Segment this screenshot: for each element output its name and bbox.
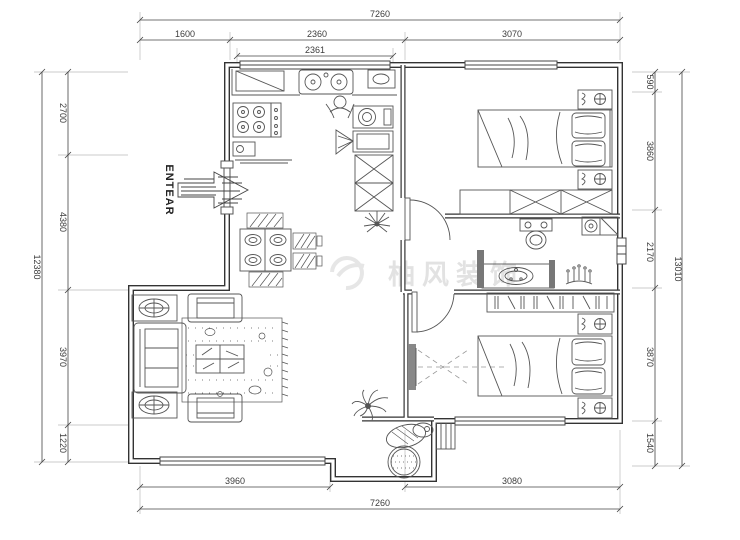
bed-icon <box>478 336 612 396</box>
door-swing-icon <box>405 198 450 240</box>
dim-left-seg-4: 1220 <box>58 433 68 453</box>
cone-fan-icon <box>336 130 353 154</box>
pillow-icon <box>572 368 605 394</box>
wardrobe-icon <box>460 190 612 214</box>
dim-top-seg-3: 3070 <box>502 29 522 39</box>
column-cabinet <box>353 131 393 152</box>
pillow-icon <box>572 339 605 365</box>
chair-icon <box>247 213 283 228</box>
dim-right-seg-2: 3860 <box>645 141 655 161</box>
side-table-icon <box>132 295 177 321</box>
hanger-closet-icon <box>487 293 614 312</box>
door-swing-icon <box>412 292 454 332</box>
living-room <box>132 294 288 422</box>
sofa-icon <box>134 323 186 393</box>
candelabra-icon <box>566 265 592 284</box>
dim-right-overall: 13010 <box>673 256 683 281</box>
bedroom-2 <box>408 292 612 418</box>
chair-icon <box>293 233 322 249</box>
plant-icon <box>364 211 390 232</box>
steps-icon <box>436 423 455 449</box>
kitchen-window-icon <box>240 61 390 69</box>
bed-icon <box>478 110 612 167</box>
watermark-logo-icon <box>332 258 364 288</box>
nightstand-lamp-icon <box>578 398 612 418</box>
pillow-icon <box>572 141 605 166</box>
dim-left-seg-3: 3970 <box>58 347 68 367</box>
dim-right-seg-1: 590 <box>645 74 655 89</box>
entrance-arrow-icon <box>178 172 248 208</box>
bedroom2-window-icon <box>455 417 565 425</box>
dim-right-seg-3: 2170 <box>645 242 655 262</box>
chair-icon <box>249 272 283 287</box>
coffee-table-icon <box>196 345 244 373</box>
entrance-door-frame <box>221 161 233 214</box>
nightstand-lamp-icon <box>578 314 612 334</box>
dim-bottom-seg-1: 3960 <box>225 476 245 486</box>
pillow-icon <box>572 113 605 138</box>
interior-walls <box>362 65 620 419</box>
dining-area <box>240 213 322 287</box>
kitchen-sink-icon <box>299 70 353 94</box>
dim-top-overall: 7260 <box>370 9 390 19</box>
dimension-left <box>39 69 71 465</box>
kitchen-low-cabinet <box>233 142 292 163</box>
dim-top-window: 2361 <box>305 45 325 55</box>
bathroom-window-icon <box>617 238 626 264</box>
stove-icon <box>233 103 281 137</box>
dim-left-seg-2: 4380 <box>58 212 68 232</box>
nightstand-lamp-icon <box>578 90 612 109</box>
dim-top-seg-2: 2360 <box>307 29 327 39</box>
living-window-icon <box>160 457 325 465</box>
dining-chairs <box>247 213 322 287</box>
palm-plant-icon <box>352 390 388 420</box>
dim-right-seg-4: 3870 <box>645 347 655 367</box>
kitchen-counter <box>232 69 397 95</box>
chair-icon <box>293 253 322 269</box>
dim-bottom-seg-2: 3080 <box>502 476 522 486</box>
dim-right-seg-5: 1540 <box>645 433 655 453</box>
nightstand-lamp-icon <box>578 170 612 189</box>
dim-left-seg-1: 2700 <box>58 103 68 123</box>
toilet-icon <box>520 219 552 249</box>
dining-table-icon <box>240 229 291 271</box>
bedroom1-window-icon <box>465 61 557 69</box>
watermark: 柚风装饰 <box>332 258 524 290</box>
floor-plan-canvas: 柚风装饰 7260 1600 2360 3070 2361 3960 3080 … <box>0 0 740 540</box>
appliance-column <box>336 106 393 232</box>
dim-bottom-overall: 7260 <box>370 498 390 508</box>
entrance-label: ENTEAR <box>163 164 175 215</box>
x-cabinet-icon <box>355 155 393 211</box>
entrance: ENTEAR <box>163 161 248 216</box>
person-figure <box>326 96 354 118</box>
kettle-icon <box>368 70 395 88</box>
watermark-text: 柚风装饰 <box>388 260 524 290</box>
dim-top-seg-1: 1600 <box>175 29 195 39</box>
washing-machine-icon <box>353 106 393 128</box>
dim-left-overall: 12380 <box>32 254 42 279</box>
corner-sink-icon <box>582 217 618 235</box>
floor-plan-drawing: 柚风装饰 7260 1600 2360 3070 2361 3960 3080 … <box>0 0 740 540</box>
round-rug-icon <box>388 446 420 478</box>
armchair-icon <box>188 394 242 422</box>
side-table-icon <box>132 392 177 418</box>
dimension-top <box>137 17 623 59</box>
